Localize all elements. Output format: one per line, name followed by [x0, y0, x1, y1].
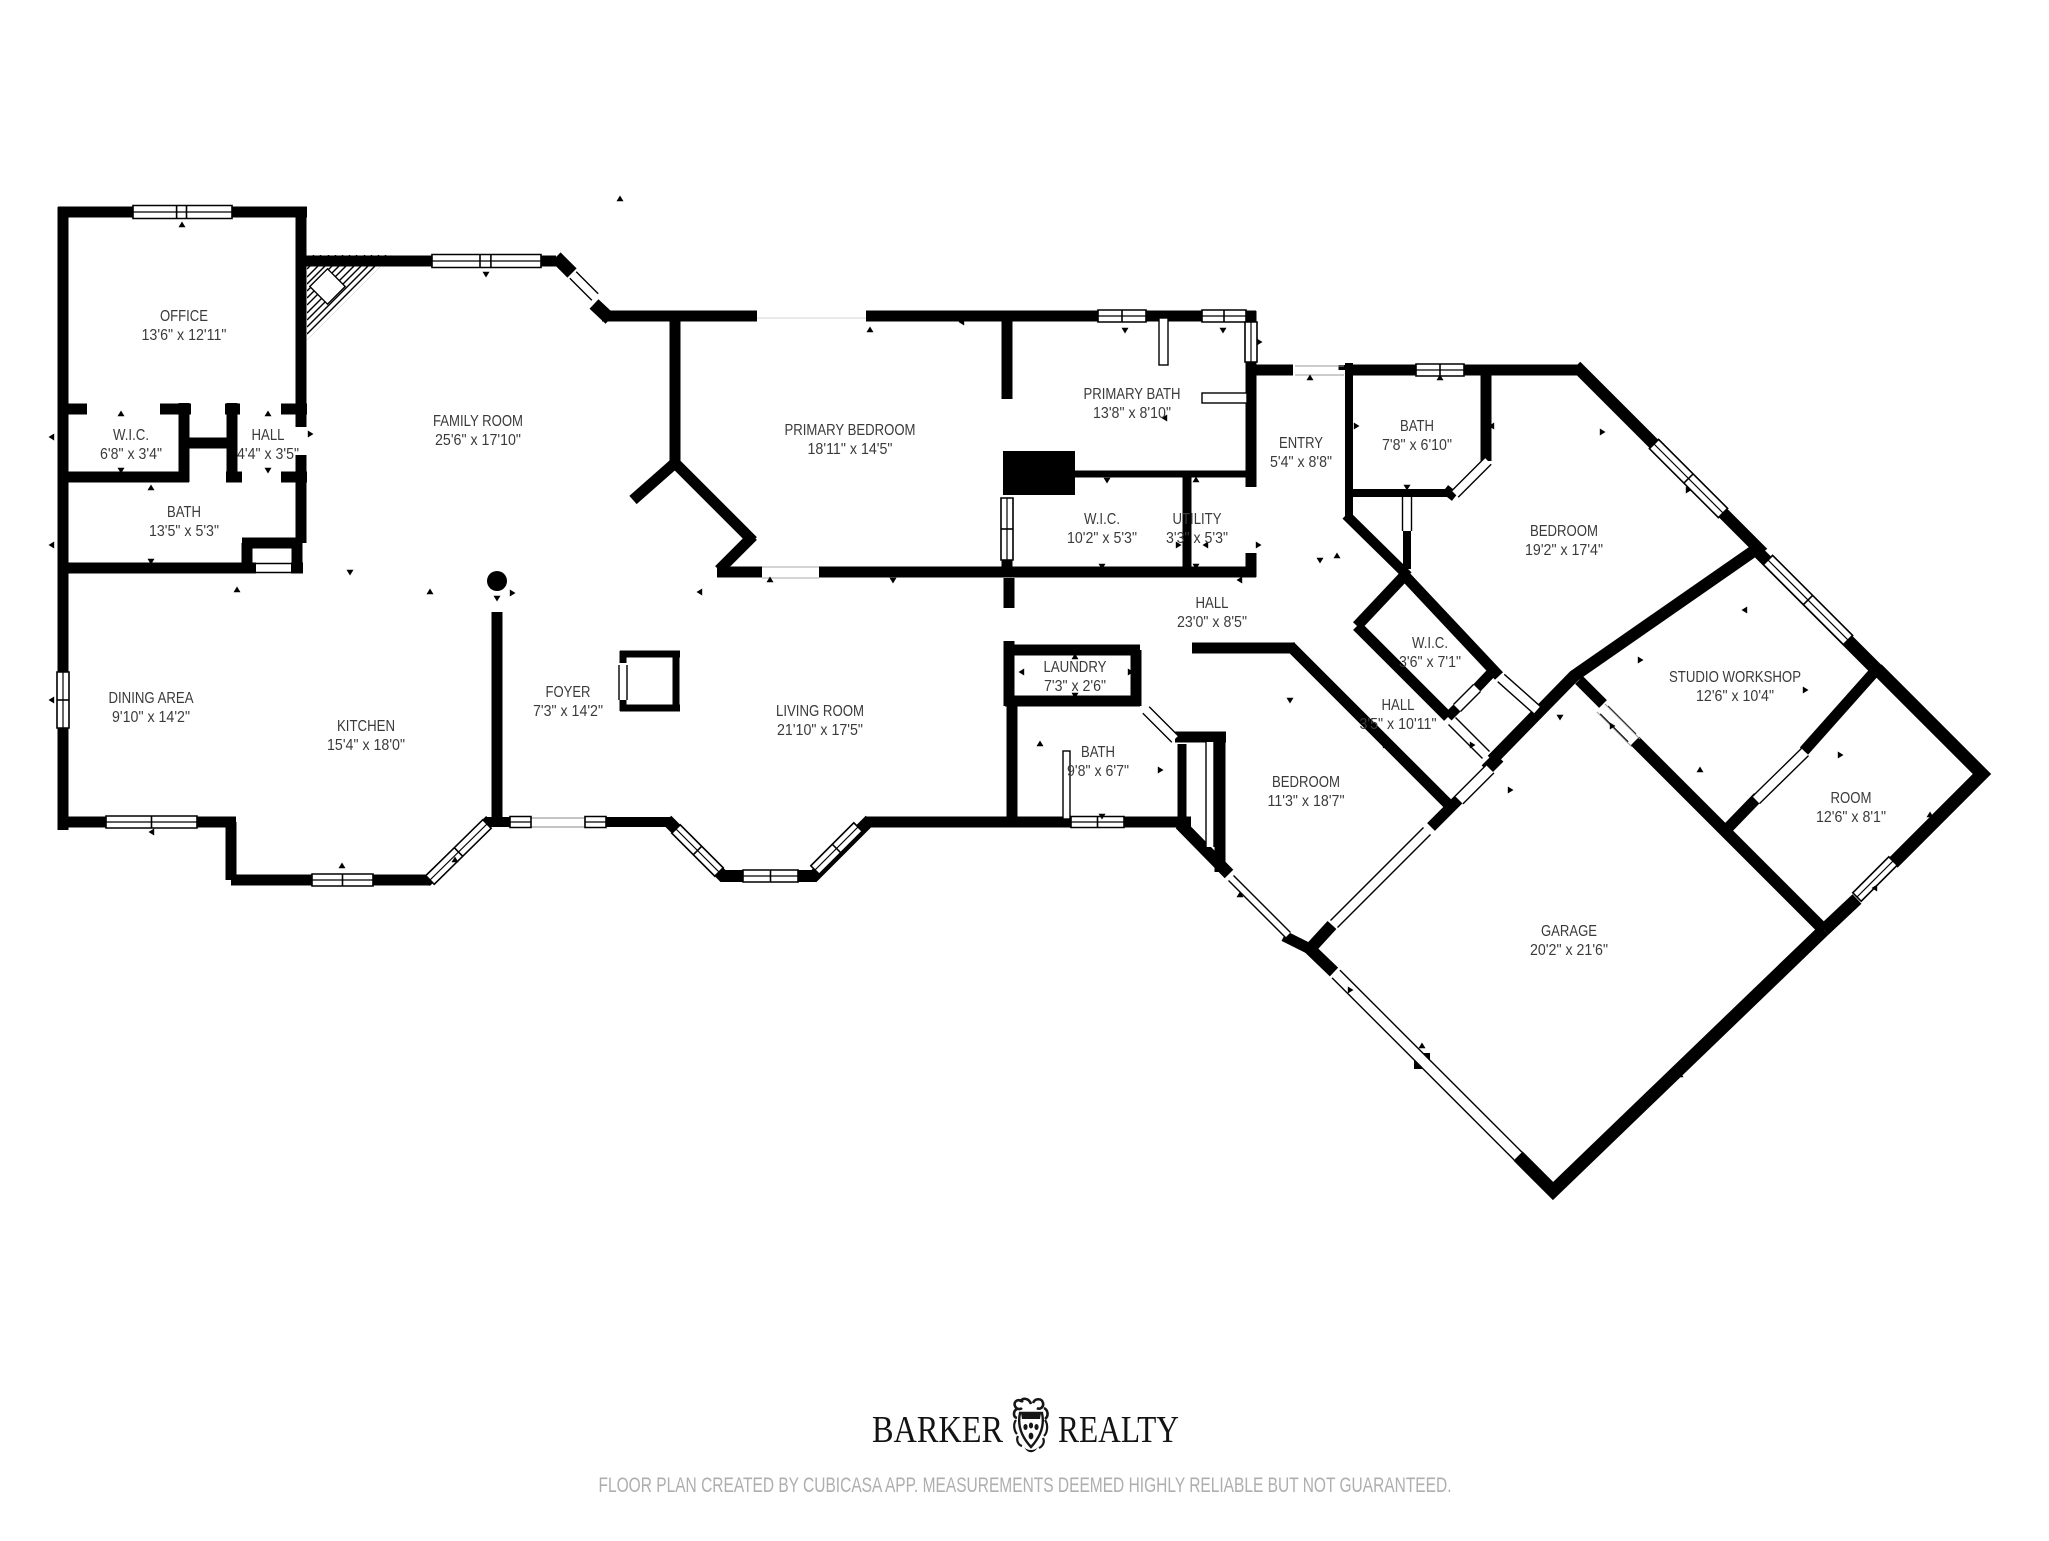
svg-text:13'6" x 12'11": 13'6" x 12'11" [142, 327, 227, 344]
svg-text:11'3" x 18'7": 11'3" x 18'7" [1268, 793, 1345, 810]
svg-text:FOYER: FOYER [546, 684, 591, 701]
svg-text:PRIMARY BATH: PRIMARY BATH [1084, 386, 1181, 403]
svg-text:DINING AREA: DINING AREA [109, 690, 195, 707]
svg-text:BATH: BATH [1400, 418, 1434, 435]
svg-text:HALL: HALL [252, 427, 285, 444]
svg-text:W.I.C.: W.I.C. [113, 427, 149, 444]
svg-text:LAUNDRY: LAUNDRY [1044, 659, 1107, 676]
svg-text:13'8" x 8'10": 13'8" x 8'10" [1093, 405, 1171, 422]
svg-text:W.I.C.: W.I.C. [1084, 511, 1120, 528]
svg-text:9'8" x 6'7": 9'8" x 6'7" [1067, 763, 1129, 780]
svg-text:3'6" x 7'1": 3'6" x 7'1" [1399, 654, 1461, 671]
svg-text:21'10" x 17'5": 21'10" x 17'5" [777, 722, 863, 739]
svg-text:19'2" x 17'4": 19'2" x 17'4" [1525, 542, 1603, 559]
svg-text:HALL: HALL [1196, 595, 1229, 612]
svg-text:12'6" x 8'1": 12'6" x 8'1" [1816, 809, 1886, 826]
svg-text:12'6" x 10'4": 12'6" x 10'4" [1696, 688, 1774, 705]
svg-text:GARAGE: GARAGE [1541, 923, 1597, 940]
svg-text:FLOOR PLAN CREATED BY CUBICASA: FLOOR PLAN CREATED BY CUBICASA APP. MEAS… [599, 1473, 1452, 1497]
svg-text:FAMILY ROOM: FAMILY ROOM [433, 413, 523, 430]
svg-text:7'3" x 14'2": 7'3" x 14'2" [533, 703, 603, 720]
svg-text:23'0" x 8'5": 23'0" x 8'5" [1177, 614, 1247, 631]
svg-text:BEDROOM: BEDROOM [1530, 523, 1598, 540]
svg-text:7'3" x 2'6": 7'3" x 2'6" [1044, 678, 1106, 695]
svg-text:4'4" x 3'5": 4'4" x 3'5" [237, 446, 299, 463]
svg-text:W.I.C.: W.I.C. [1412, 635, 1448, 652]
svg-text:20'2" x 21'6": 20'2" x 21'6" [1530, 942, 1608, 959]
svg-text:UTILITY: UTILITY [1173, 511, 1222, 528]
svg-text:HALL: HALL [1382, 697, 1415, 714]
svg-text:9'10" x 14'2": 9'10" x 14'2" [112, 709, 190, 726]
svg-text:KITCHEN: KITCHEN [337, 718, 395, 735]
svg-text:25'6" x 17'10": 25'6" x 17'10" [435, 432, 521, 449]
svg-text:3'5" x 10'11": 3'5" x 10'11" [1360, 716, 1437, 733]
svg-text:13'5" x 5'3": 13'5" x 5'3" [149, 523, 219, 540]
svg-text:LIVING ROOM: LIVING ROOM [776, 703, 864, 720]
svg-text:5'4" x 8'8": 5'4" x 8'8" [1270, 454, 1332, 471]
svg-text:BATH: BATH [167, 504, 201, 521]
svg-text:BATH: BATH [1081, 744, 1115, 761]
svg-text:OFFICE: OFFICE [160, 308, 208, 325]
svg-text:3'3" x 5'3": 3'3" x 5'3" [1166, 530, 1228, 547]
svg-text:PRIMARY BEDROOM: PRIMARY BEDROOM [785, 422, 916, 439]
svg-text:STUDIO WORKSHOP: STUDIO WORKSHOP [1669, 669, 1801, 686]
svg-text:18'11" x 14'5": 18'11" x 14'5" [808, 441, 893, 458]
svg-text:BARKER: BARKER [872, 1409, 1004, 1451]
svg-text:REALTY: REALTY [1058, 1409, 1179, 1451]
svg-text:6'8" x 3'4": 6'8" x 3'4" [100, 446, 162, 463]
svg-text:10'2" x 5'3": 10'2" x 5'3" [1067, 530, 1137, 547]
svg-text:ENTRY: ENTRY [1279, 435, 1323, 452]
svg-text:ROOM: ROOM [1831, 790, 1872, 807]
svg-text:BEDROOM: BEDROOM [1272, 774, 1340, 791]
svg-text:15'4" x 18'0": 15'4" x 18'0" [327, 737, 405, 754]
svg-text:7'8" x 6'10": 7'8" x 6'10" [1382, 437, 1452, 454]
